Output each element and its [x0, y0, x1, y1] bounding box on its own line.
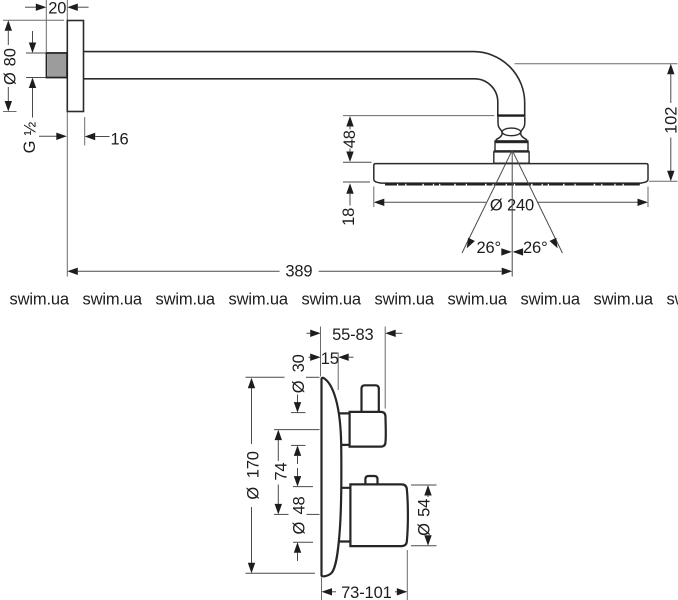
svg-text:swim.ua: swim.ua — [521, 290, 581, 308]
svg-text:54: 54 — [416, 499, 434, 517]
svg-text:73-101: 73-101 — [341, 584, 391, 600]
svg-text:G: G — [21, 141, 39, 154]
svg-text:48: 48 — [341, 130, 359, 148]
svg-text:swim.ua: swim.ua — [667, 290, 678, 308]
svg-text:170: 170 — [245, 451, 263, 478]
svg-text:26°: 26° — [476, 239, 501, 257]
svg-text:Ø: Ø — [416, 523, 434, 536]
svg-text:Ø: Ø — [2, 72, 20, 85]
svg-text:55-83: 55-83 — [332, 326, 373, 344]
svg-text:26°: 26° — [523, 239, 548, 257]
svg-text:48: 48 — [291, 496, 309, 514]
svg-text:Ø: Ø — [291, 522, 309, 535]
svg-text:102: 102 — [663, 107, 678, 134]
svg-text:swim.ua: swim.ua — [448, 290, 508, 308]
svg-text:Ø: Ø — [245, 487, 263, 500]
svg-text:80: 80 — [2, 48, 20, 66]
svg-text:16: 16 — [111, 131, 129, 149]
svg-text:15: 15 — [321, 350, 339, 368]
svg-text:swim.ua: swim.ua — [594, 290, 654, 308]
svg-text:74: 74 — [273, 463, 291, 481]
svg-text:389: 389 — [285, 262, 312, 280]
svg-text:swim.ua: swim.ua — [10, 290, 70, 308]
svg-text:swim.ua: swim.ua — [229, 290, 289, 308]
svg-text:swim.ua: swim.ua — [375, 290, 435, 308]
svg-text:swim.ua: swim.ua — [83, 290, 143, 308]
svg-text:18: 18 — [340, 208, 358, 226]
svg-text:30: 30 — [290, 354, 308, 372]
svg-text:½: ½ — [22, 122, 40, 136]
svg-text:20: 20 — [48, 0, 66, 17]
svg-text:swim.ua: swim.ua — [156, 290, 216, 308]
svg-text:Ø: Ø — [290, 380, 308, 393]
svg-text:swim.ua: swim.ua — [302, 290, 362, 308]
